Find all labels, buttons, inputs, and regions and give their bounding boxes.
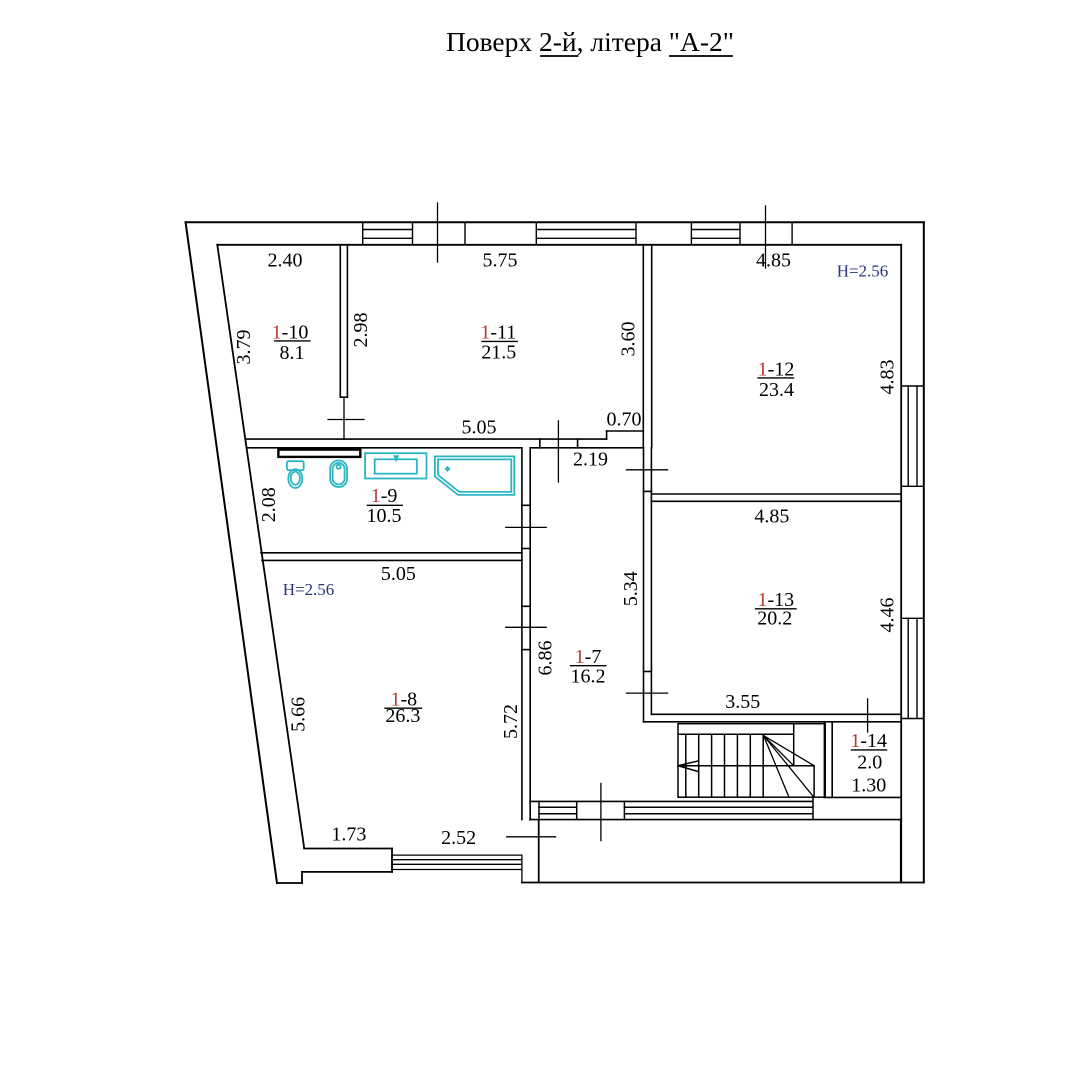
svg-text:1-7: 1-7 [575, 646, 602, 668]
svg-text:2.0: 2.0 [857, 752, 882, 774]
svg-text:Н=2.56: Н=2.56 [283, 580, 335, 599]
svg-text:Поверх 2-й, літера "А-2": Поверх 2-й, літера "А-2" [446, 26, 734, 57]
svg-text:1-9: 1-9 [371, 485, 398, 507]
svg-text:21.5: 21.5 [481, 342, 516, 364]
svg-text:16.2: 16.2 [571, 666, 606, 688]
svg-text:5.72: 5.72 [500, 704, 522, 739]
svg-text:23.4: 23.4 [759, 379, 794, 401]
svg-text:2.19: 2.19 [573, 449, 608, 471]
svg-text:8.1: 8.1 [280, 342, 305, 364]
svg-text:2.52: 2.52 [441, 827, 476, 849]
svg-text:2.40: 2.40 [268, 250, 303, 272]
svg-text:4.83: 4.83 [877, 360, 899, 395]
svg-text:Н=2.56: Н=2.56 [837, 262, 889, 281]
svg-text:4.85: 4.85 [754, 506, 789, 528]
svg-text:1-10: 1-10 [272, 321, 309, 343]
svg-text:5.05: 5.05 [462, 417, 497, 439]
svg-text:2.08: 2.08 [258, 487, 280, 522]
svg-text:10.5: 10.5 [367, 505, 402, 527]
svg-text:5.05: 5.05 [381, 563, 416, 585]
svg-text:3.55: 3.55 [725, 691, 760, 713]
svg-text:5.34: 5.34 [620, 571, 642, 606]
svg-text:20.2: 20.2 [757, 607, 792, 629]
svg-text:1-11: 1-11 [480, 322, 516, 344]
svg-text:3.79: 3.79 [233, 330, 255, 365]
svg-text:6.86: 6.86 [534, 641, 556, 676]
svg-text:1.30: 1.30 [851, 775, 886, 797]
svg-text:3.60: 3.60 [618, 322, 640, 357]
svg-text:4.85: 4.85 [756, 250, 791, 272]
svg-text:5.75: 5.75 [483, 250, 518, 272]
svg-text:4.46: 4.46 [877, 598, 899, 633]
svg-text:1-14: 1-14 [850, 730, 887, 752]
svg-text:26.3: 26.3 [385, 705, 420, 727]
svg-text:5.66: 5.66 [288, 697, 310, 732]
svg-text:1-12: 1-12 [758, 358, 795, 380]
svg-text:0.70: 0.70 [607, 409, 642, 431]
svg-text:1.73: 1.73 [331, 824, 366, 846]
svg-text:2.98: 2.98 [350, 313, 372, 348]
